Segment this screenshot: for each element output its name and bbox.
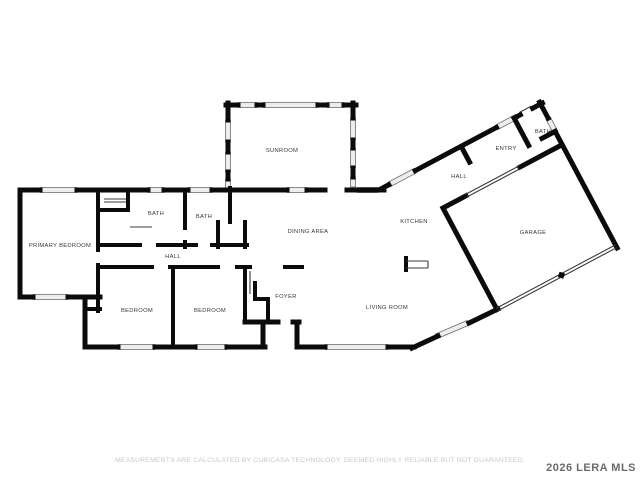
sunroom-walls [226, 103, 356, 179]
measurement-disclaimer: MEASUREMENTS ARE CALCULATED BY CUBICASA … [0, 457, 640, 464]
floor-plan-drawing: SUNROOM PRIMARY BEDROOM BATH BATH HALL D… [0, 0, 640, 480]
room-label-bedroom-2: BEDROOM [194, 308, 226, 314]
room-label-primary-bedroom: PRIMARY BEDROOM [29, 243, 91, 249]
room-label-living-room: LIVING ROOM [366, 305, 408, 311]
angled-wing-walls [381, 101, 619, 332]
room-label-hall-west: HALL [165, 254, 181, 260]
angled-wing [380, 101, 620, 335]
room-label-hall-east: HALL [451, 174, 467, 180]
room-label-bedroom-1: BEDROOM [121, 308, 153, 314]
room-label-entry: ENTRY [495, 146, 516, 152]
room-label-dining-area: DINING AREA [288, 229, 329, 235]
room-label-bath-1: BATH [148, 211, 164, 217]
mls-watermark: 2026 LERA MLS [546, 462, 636, 474]
outer-walls [20, 190, 498, 348]
room-labels: SUNROOM PRIMARY BEDROOM BATH BATH HALL D… [29, 129, 551, 314]
room-label-foyer: FOYER [275, 294, 296, 300]
room-label-garage: GARAGE [520, 230, 547, 236]
interior-walls [85, 188, 406, 347]
room-label-bath-3: BATH [535, 129, 551, 135]
room-label-kitchen: KITCHEN [400, 219, 428, 225]
room-label-sunroom: SUNROOM [266, 148, 298, 154]
floor-plan-page: { "floor_plan": { "room_labels": [ "SUNR… [0, 0, 640, 480]
room-label-bath-2: BATH [196, 214, 212, 220]
